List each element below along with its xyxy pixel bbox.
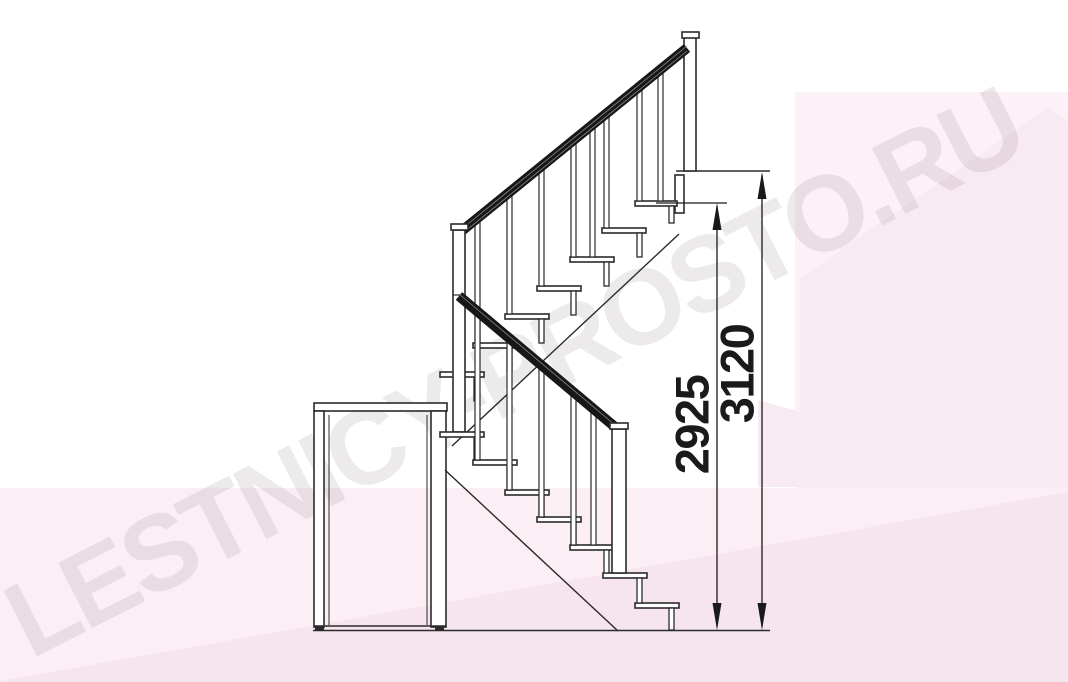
baluster <box>539 168 544 286</box>
landing-platform-board <box>314 403 447 411</box>
newel-post-body <box>453 230 465 432</box>
tread <box>570 257 614 262</box>
box-right-post <box>431 411 446 627</box>
top-newel-post <box>684 37 696 171</box>
baluster <box>571 391 576 545</box>
tread <box>537 286 581 291</box>
baluster <box>507 336 512 490</box>
tread <box>635 603 679 608</box>
baluster <box>590 125 595 257</box>
step-support <box>604 262 609 286</box>
tread <box>505 314 549 319</box>
step-support <box>604 550 609 573</box>
step-support <box>669 608 674 630</box>
lower-newel-post <box>610 423 628 573</box>
tread <box>602 228 646 233</box>
upper-floor-fascia <box>675 175 684 213</box>
baluster <box>591 407 596 545</box>
baluster <box>637 88 642 201</box>
baluster <box>507 194 512 314</box>
step-support <box>637 233 642 257</box>
tread <box>570 545 614 550</box>
newel-post-body <box>612 429 626 573</box>
baluster <box>658 71 663 201</box>
step-support <box>669 206 674 223</box>
main-newel-post <box>451 224 468 432</box>
newel-post-cap <box>610 423 628 429</box>
baluster <box>604 115 609 228</box>
step-support <box>539 319 544 343</box>
baluster <box>475 309 480 460</box>
baluster <box>539 363 544 517</box>
stair-drawing-page: LESTNICY-PROSTO.RU <box>0 0 1068 682</box>
step-support <box>637 578 642 603</box>
stair-elevation-canvas: LESTNICY-PROSTO.RU <box>0 0 1068 682</box>
newel-post-cap <box>451 224 468 230</box>
step-support <box>571 291 576 315</box>
baluster <box>571 141 576 257</box>
box-left-post <box>314 411 324 627</box>
top-newel-cap <box>682 32 699 38</box>
box-right-foot <box>435 627 444 631</box>
dimension-3120-label: 3120 <box>710 324 763 423</box>
box-left-foot <box>315 627 324 631</box>
